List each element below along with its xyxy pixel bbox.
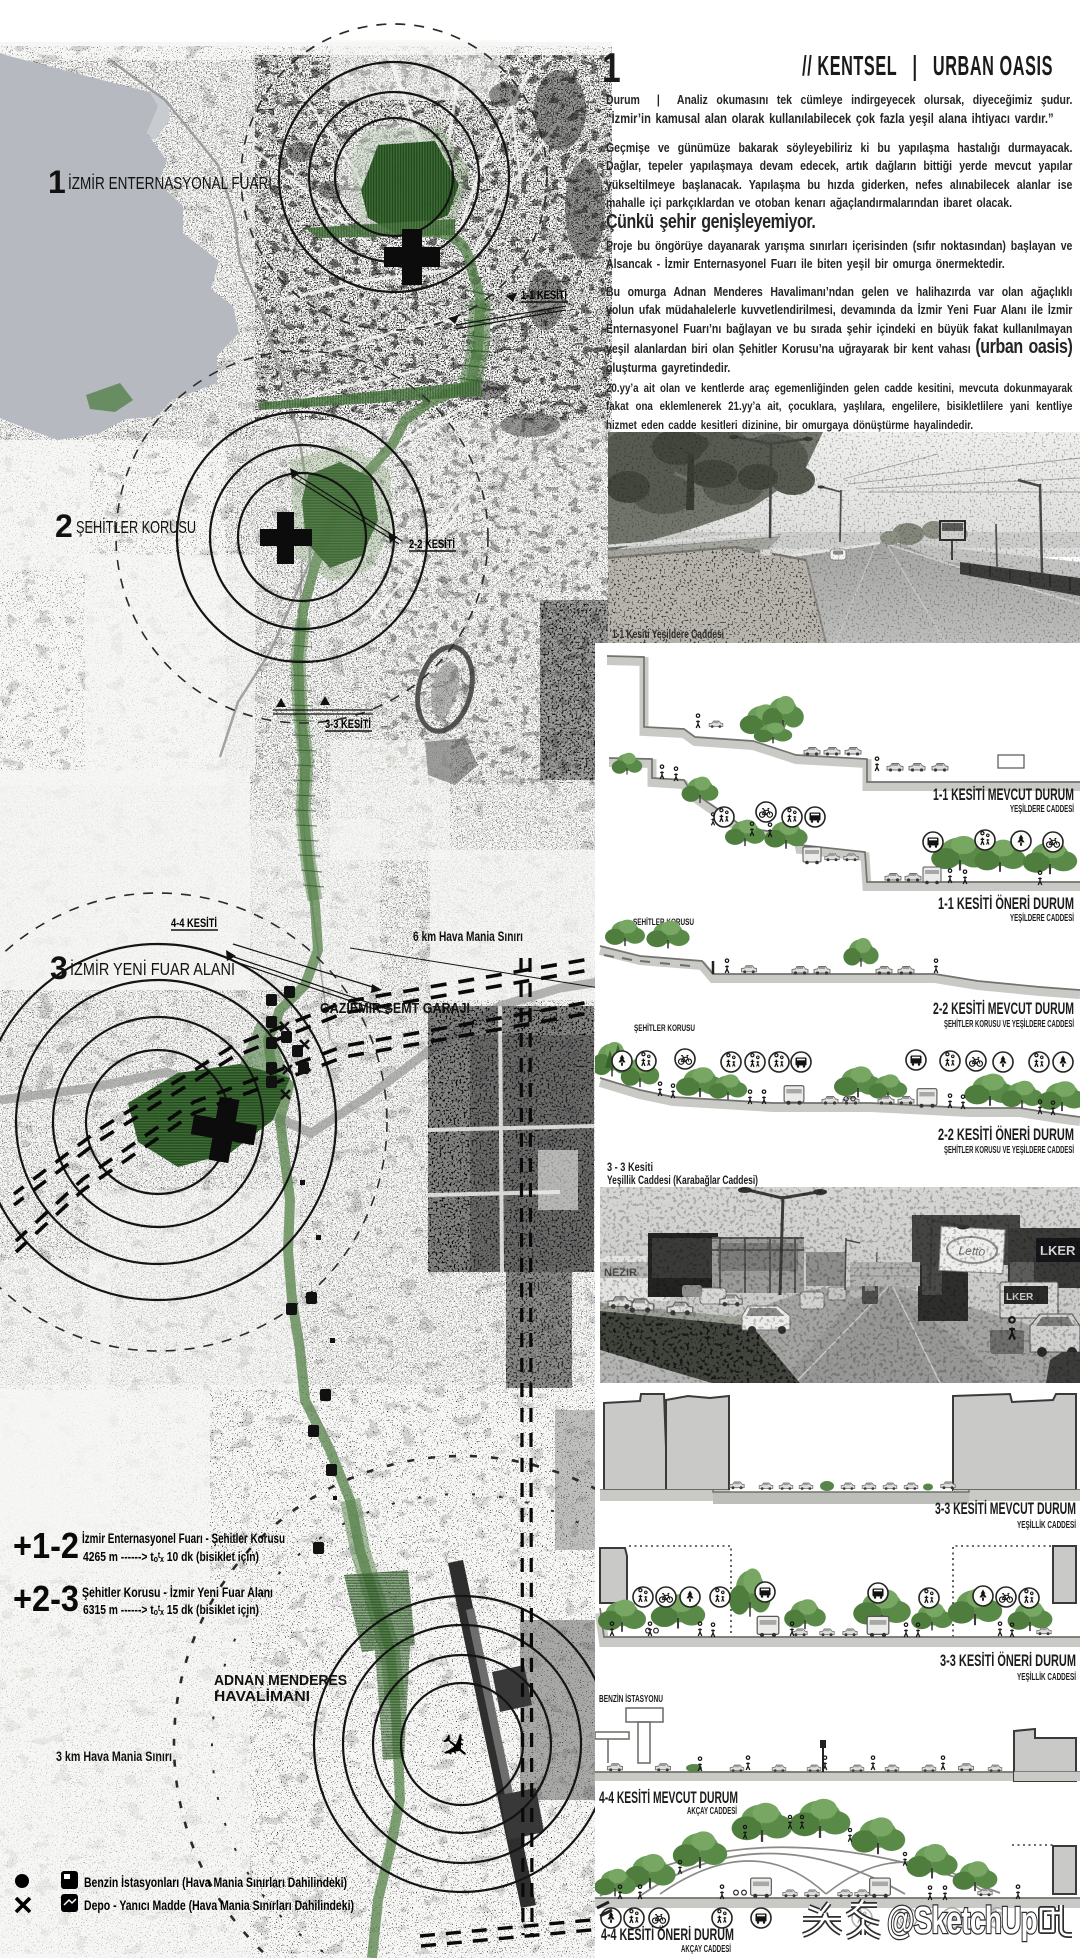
svg-text:ŞEHİTLER KORUSU: ŞEHİTLER KORUSU	[634, 1023, 695, 1034]
svg-text:Benzin İstasyonları (Hava Man: Benzin İstasyonları (Hava Mania Sınırlar…	[84, 1874, 347, 1890]
svg-text:YEŞİLLİK CADDESİ: YEŞİLLİK CADDESİ	[1017, 1670, 1076, 1683]
svg-text:4-4 KESİTİ ÖNERİ DURUM: 4-4 KESİTİ ÖNERİ DURUM	[601, 1925, 734, 1944]
svg-text:YEŞİLLİK CADDESİ: YEŞİLLİK CADDESİ	[1017, 1518, 1076, 1531]
svg-text:4265 m ------> tₒᵗₓ 10 dk (bi: 4265 m ------> tₒᵗₓ 10 dk (bisiklet için…	[83, 1549, 259, 1564]
svg-text:İZMİR YENİ FUAR ALANI: İZMİR YENİ FUAR ALANI	[70, 959, 235, 979]
svg-text:ŞEHİTLER KORUSU: ŞEHİTLER KORUSU	[76, 517, 196, 537]
svg-text:1-1 KESİTİ ÖNERİ DURUM: 1-1 KESİTİ ÖNERİ DURUM	[938, 894, 1074, 913]
svg-text:1: 1	[48, 164, 66, 200]
svg-text:1-1 KESİTİ: 1-1 KESİTİ	[521, 289, 567, 302]
svg-text:3 km Hava Mania Sınırı: 3 km Hava Mania Sınırı	[56, 1749, 172, 1764]
svg-text:2-2 KESİTİ: 2-2 KESİTİ	[409, 538, 455, 551]
svg-text:ADNAN MENDERES: ADNAN MENDERES	[214, 1673, 347, 1689]
svg-text:2-2 KESİTİ ÖNERİ DURUM: 2-2 KESİTİ ÖNERİ DURUM	[938, 1125, 1074, 1144]
svg-text:AKÇAY CADDESİ: AKÇAY CADDESİ	[687, 1804, 737, 1817]
svg-text:AKÇAY CADDESİ: AKÇAY CADDESİ	[681, 1942, 731, 1955]
svg-text:@SketchUp: @SketchUp	[887, 1900, 1037, 1942]
svg-text:Depo - Yanıcı Madde (Hava Mani: Depo - Yanıcı Madde (Hava Mania Sınırlar…	[84, 1897, 354, 1913]
svg-text:3-3 KESİTİ: 3-3 KESİTİ	[325, 718, 371, 731]
svg-text:Şehitler Korusu - İzmir Yeni F: Şehitler Korusu - İzmir Yeni Fuar Alanı	[82, 1584, 273, 1600]
svg-text:Yeşillik Caddesi (Karabağlar C: Yeşillik Caddesi (Karabağlar Caddesi)	[607, 1173, 758, 1187]
svg-text:3-3 KESİTİ MEVCUT DURUM: 3-3 KESİTİ MEVCUT DURUM	[935, 1500, 1076, 1518]
svg-text:4-4 KESİTİ: 4-4 KESİTİ	[171, 917, 217, 930]
svg-text:2-2 KESİTİ MEVCUT DURUM: 2-2 KESİTİ MEVCUT DURUM	[933, 1000, 1074, 1018]
svg-text:3-3 KESİTİ ÖNERİ DURUM: 3-3 KESİTİ ÖNERİ DURUM	[940, 1651, 1076, 1670]
svg-text:+1-2: +1-2	[13, 1525, 79, 1566]
svg-text:YEŞİLDERE CADDESİ: YEŞİLDERE CADDESİ	[1010, 911, 1074, 924]
svg-text:ŞEHİTLER KORUSU VE YEŞİLDERE C: ŞEHİTLER KORUSU VE YEŞİLDERE CADDESİ	[944, 1143, 1074, 1156]
svg-text:1-1 Kesiti Yeşildere Caddesi: 1-1 Kesiti Yeşildere Caddesi	[612, 629, 724, 641]
svg-text:6 km Hava Mania Sınırı: 6 km Hava Mania Sınırı	[413, 929, 523, 944]
svg-text:ŞEHİTLER KORUSU VE YEŞİLDERE C: ŞEHİTLER KORUSU VE YEŞİLDERE CADDESİ	[944, 1017, 1074, 1030]
svg-text:HAVALİMANI: HAVALİMANI	[214, 1688, 310, 1705]
svg-text:3 - 3 Kesiti: 3 - 3 Kesiti	[607, 1160, 653, 1174]
svg-text:BENZİN İSTASYONU: BENZİN İSTASYONU	[599, 1692, 663, 1705]
svg-text:İzmir Enternasyonel Fuarı - Şe: İzmir Enternasyonel Fuarı - Şehitler Kor…	[82, 1530, 285, 1546]
svg-text:+2-3: +2-3	[13, 1578, 79, 1619]
svg-text:3: 3	[50, 950, 68, 986]
svg-text:2: 2	[55, 508, 73, 544]
svg-text:YEŞİLDERE CADDESİ: YEŞİLDERE CADDESİ	[1010, 802, 1074, 815]
svg-text:İZMİR ENTERNASYONAL FUARI: İZMİR ENTERNASYONAL FUARI	[68, 173, 272, 193]
svg-text:4-4 KESİTİ MEVCUT DURUM: 4-4 KESİTİ MEVCUT DURUM	[599, 1789, 738, 1807]
svg-text:1-1 KESİTİ MEVCUT DURUM: 1-1 KESİTİ MEVCUT DURUM	[933, 786, 1074, 804]
svg-text:GAZIEMIR SEMT GARAJI: GAZIEMIR SEMT GARAJI	[320, 1000, 470, 1017]
svg-text:6315 m ------> tₒᵗₓ 15 dk (bi: 6315 m ------> tₒᵗₓ 15 dk (bisiklet için…	[83, 1602, 259, 1617]
